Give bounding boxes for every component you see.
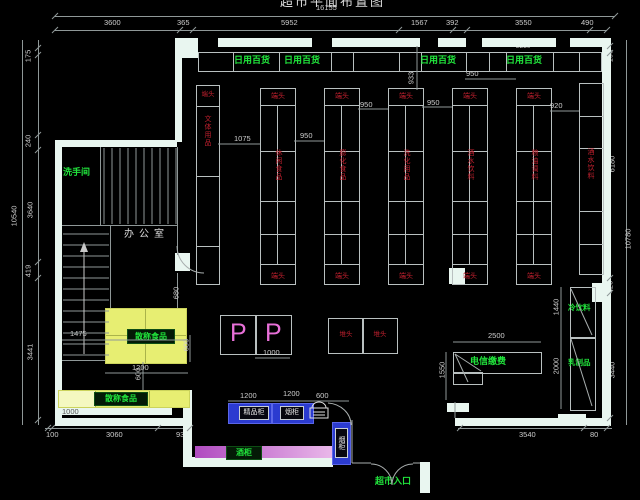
dim-top-5: 392: [446, 19, 459, 27]
shelf-end-label: 端头: [197, 91, 219, 99]
shelf-divider: [489, 53, 490, 71]
gondola-center-line: [277, 106, 278, 264]
partition-line: [100, 147, 101, 225]
dim-aisle-950c: 950: [427, 99, 440, 107]
dim-bottom-1: 100: [46, 431, 59, 439]
gondola-category: 休闲食品: [273, 149, 283, 181]
dim-telecom-1550: 1550: [438, 362, 446, 379]
cigarette-label-box: 烟柜: [280, 406, 304, 420]
shelf-line: [580, 244, 603, 245]
dim-top-6: 3550: [515, 19, 532, 27]
shelf-line: [389, 201, 423, 202]
dim-cold-1440: 1440: [552, 299, 560, 316]
wall-block: [558, 414, 586, 426]
p-letter-2: P: [265, 319, 282, 347]
wall-segment: [482, 38, 556, 47]
shelf-divider: [399, 53, 400, 71]
dim-checkout-1200a: 1200: [240, 392, 257, 400]
shelf-line: [580, 116, 603, 117]
gondola-end-label: 端头: [453, 89, 487, 106]
gondola-center-line: [405, 106, 406, 264]
gondola-shelf-5: 端头 粮油调料 端头: [516, 88, 552, 285]
shelf-line: [261, 264, 295, 265]
dim-bulk-1475: 1475: [70, 330, 87, 338]
shelf-divider: [553, 53, 554, 71]
shelf-line: [517, 234, 551, 235]
dim-line: [45, 428, 192, 429]
drawing-title-clipped: 超市平面布置图: [280, 0, 420, 7]
cigarette-vertical-label: 烟柜: [338, 436, 345, 450]
telecom-counter-step: [453, 372, 483, 385]
cold-drinks-cabinet: [570, 287, 596, 339]
gondola-foot-label: 端头: [325, 271, 359, 281]
entrance-wall-lines: [352, 420, 420, 463]
shelf-line: [261, 234, 295, 235]
wall-block: [175, 253, 190, 271]
dim-aisle-950b: 950: [360, 101, 373, 109]
bulk-food-label: 散称食品: [128, 330, 174, 343]
gondola-category: 膨化食品: [337, 149, 347, 181]
entrance-label: 超市入口: [375, 476, 411, 486]
shelf-line: [325, 264, 359, 265]
dim-top-2: 365: [177, 19, 190, 27]
dim-bulk-600b: 600: [134, 368, 142, 381]
shelf-line: [517, 264, 551, 265]
wall-segment: [570, 38, 604, 47]
dim-right-overall: 10780: [624, 229, 632, 250]
wall-annex-top: [55, 140, 177, 147]
p-letter-1: P: [230, 319, 247, 347]
gondola-end-label: 端头: [261, 89, 295, 106]
dim-left-3: 3640: [26, 202, 34, 219]
promo-stack-2: 堆头: [362, 318, 398, 354]
dim-dairy-2000: 2000: [552, 358, 560, 375]
floorplan-canvas: 超市平面布置图 16155 3600 365 5952 1567 392 355…: [0, 0, 640, 500]
bulk-food-label-box: 散称食品: [127, 329, 175, 344]
dim-left-overall: 10540: [10, 206, 18, 227]
daily-goods-label-2: 日用百货: [284, 55, 320, 65]
strip-divider: [149, 391, 150, 407]
partition-line: [177, 147, 178, 255]
dim-bulk-680: 680: [172, 287, 180, 300]
dim-top-1: 3600: [104, 19, 121, 27]
dim-bottom-4: 3540: [519, 431, 536, 439]
gondola-center-line: [469, 106, 470, 264]
right-shelf-category: 酒水饮料: [586, 148, 594, 180]
wall-segment: [438, 38, 466, 47]
restroom-label: 洗手间: [63, 167, 90, 177]
shelf-divider: [331, 53, 332, 71]
dairy-label: 乳制品: [568, 358, 591, 368]
gondola-shelf-3: 端头 洗化用品 端头: [388, 88, 424, 285]
shelf-line: [261, 201, 295, 202]
dim-aisle-950a: 950: [300, 132, 313, 140]
dim-strip-1000: 1000: [62, 408, 79, 416]
dim-aisle-1075: 1075: [234, 135, 251, 143]
dim-telecom-2500: 2500: [488, 332, 505, 340]
wall-annex-left: [55, 140, 62, 426]
dim-bulk-600a: 600: [182, 339, 190, 352]
dim-line: [38, 40, 39, 425]
gondola-foot-label: 端头: [261, 271, 295, 281]
dim-line: [458, 428, 612, 429]
dim-line: [55, 30, 607, 31]
wine-cabinet-strip: [195, 446, 332, 458]
daily-goods-label-3: 日用百货: [420, 55, 456, 65]
dim-aisle-950d: 950: [466, 70, 479, 78]
dairy-cabinet: [570, 337, 596, 411]
shelf-line: [453, 234, 487, 235]
wine-label-box: 酒柜: [226, 446, 262, 460]
shelf-divider: [579, 53, 580, 71]
dim-line: [22, 40, 23, 425]
daily-goods-label-4: 日用百货: [506, 55, 542, 65]
gondola-center-line: [533, 106, 534, 264]
promo-stack-1: 堆头: [328, 318, 364, 354]
wall-left-main: [175, 38, 182, 142]
dim-aisle-920: 920: [550, 102, 563, 110]
gondola-shelf-4: 端头 酒水饮料 端头: [452, 88, 488, 285]
dim-top-3: 5952: [281, 19, 298, 27]
gondola-end-label: 端头: [325, 89, 359, 106]
dim-left-2: 240: [24, 135, 32, 148]
shelf-line: [453, 201, 487, 202]
shelf-line: [325, 234, 359, 235]
wall-segment: [218, 38, 312, 47]
cigarette-label: 烟柜: [285, 409, 299, 416]
telecom-label: 电信缴费: [470, 356, 506, 366]
gondola-category: 洗化用品: [401, 149, 411, 181]
gondola-end-label: 端头: [517, 89, 551, 106]
dim-checkout-600: 600: [316, 392, 329, 400]
cold-drinks-label: 冷饮料: [568, 303, 591, 313]
shelf-line: [197, 106, 219, 107]
dim-left-5: 3441: [26, 344, 34, 361]
dim-bottom-5: 80: [590, 431, 598, 439]
gondola-center-line: [341, 106, 342, 264]
office-label: 办公室: [124, 225, 169, 240]
gondola-foot-label: 端头: [389, 271, 423, 281]
gondola-category: 粮油调料: [529, 149, 539, 181]
bulk-strip-label: 散称食品: [95, 393, 147, 405]
shelf-line: [580, 211, 603, 212]
wine-label: 酒柜: [227, 447, 261, 459]
shelf-line: [197, 176, 219, 177]
shelf-line: [389, 264, 423, 265]
gondola-end-label: 端头: [389, 89, 423, 106]
dim-top-overall: 16155: [316, 4, 337, 12]
dim-aisle-933: 933: [407, 72, 415, 85]
dim-bottom-2: 3060: [106, 431, 123, 439]
shelf-line: [517, 201, 551, 202]
shelf-line: [389, 234, 423, 235]
dim-line: [55, 16, 615, 17]
shelf-divider: [279, 53, 280, 71]
shelf-line: [197, 246, 219, 247]
bulk-strip-label-box: 散称食品: [94, 392, 148, 406]
stack-label: 堆头: [329, 331, 363, 339]
stair-bottom-line: [62, 360, 110, 361]
dim-promo-1000: 1000: [263, 349, 280, 357]
wall-annex-bottom: [55, 418, 188, 426]
boutique-label: 精品柜: [244, 409, 265, 416]
boutique-label-box: 精品柜: [239, 406, 269, 420]
gondola-foot-label: 端头: [453, 271, 487, 281]
gondola-foot-label: 端头: [517, 271, 551, 281]
wall-entrance-right: [420, 462, 430, 493]
dim-checkout-1200b: 1200: [283, 390, 300, 398]
stack-label: 堆头: [363, 331, 397, 339]
wall-block: [447, 403, 469, 412]
shelf-line: [325, 201, 359, 202]
dim-top-7: 490: [581, 19, 594, 27]
shelf-line: [453, 264, 487, 265]
left-shelf-category: 文体用品: [203, 115, 211, 147]
cigarette-vertical-label-box: 烟柜: [335, 428, 348, 458]
shelf-divider: [353, 53, 354, 71]
gondola-shelf-2: 端头 膨化食品 端头: [324, 88, 360, 285]
stair-treads-upper: [104, 148, 176, 224]
gondola-shelf-1: 端头 休闲食品 端头: [260, 88, 296, 285]
daily-goods-label-1: 日用百货: [234, 55, 270, 65]
gondola-category: 酒水饮料: [465, 149, 475, 181]
dim-left-1: 175: [24, 50, 32, 63]
wall-segment: [332, 38, 420, 47]
dim-left-4: 419: [24, 265, 32, 278]
dim-top-4: 1567: [411, 19, 428, 27]
